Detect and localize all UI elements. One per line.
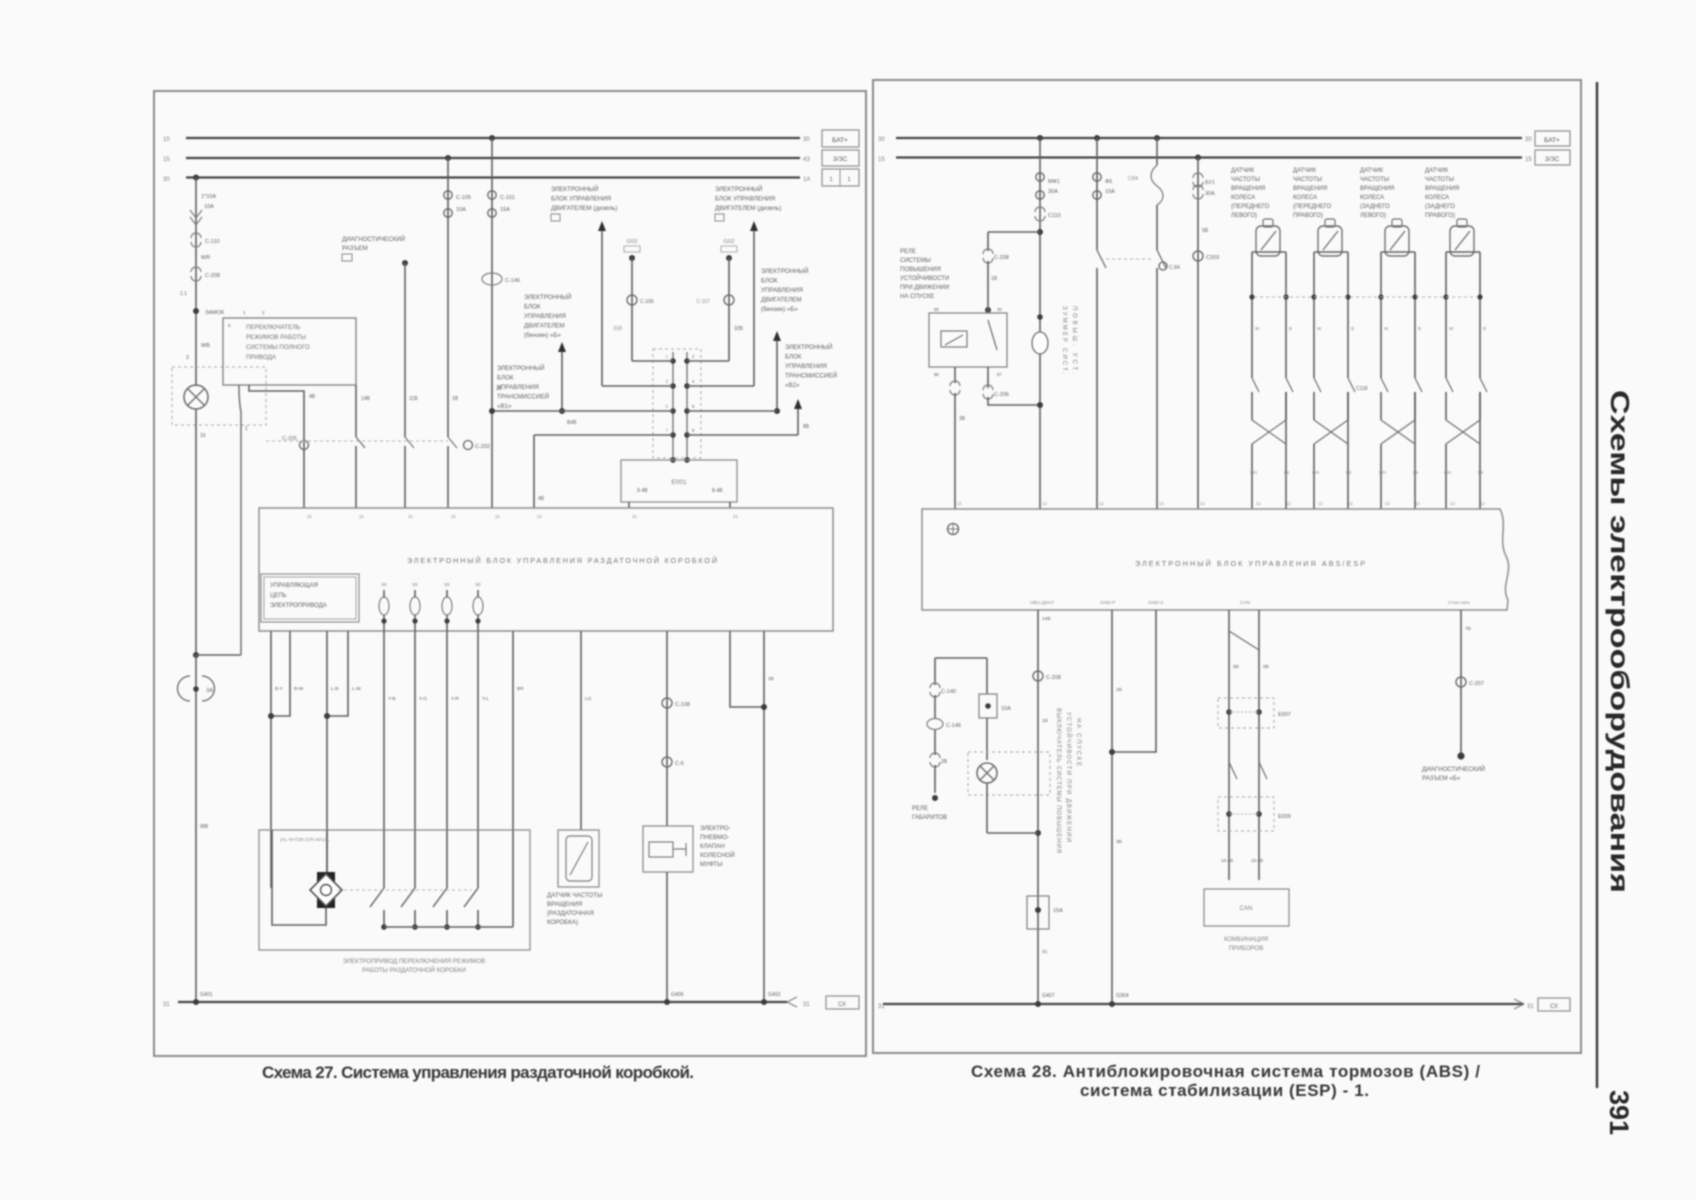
svg-text:ЗАМОК: ЗАМОК xyxy=(205,310,225,316)
svg-text:G02: G02 xyxy=(724,239,735,245)
svg-text:30A: 30A xyxy=(1048,189,1058,195)
svg-text:КЛАПАН: КЛАПАН xyxy=(700,843,725,850)
svg-text:16: 16 xyxy=(200,433,206,439)
svg-text:(ЗАДНЕГО: (ЗАДНЕГО xyxy=(1425,204,1455,210)
svg-text:BK: BK xyxy=(1284,470,1290,475)
svg-text:ПЕРЕКЛЮЧАТЕЛЬ: ПЕРЕКЛЮЧАТЕЛЬ xyxy=(246,324,300,331)
svg-text:Ф5: Ф5 xyxy=(1105,179,1112,185)
svg-text:GND-P: GND-P xyxy=(1100,600,1115,606)
svg-text:ЧАСТОТЫ: ЧАСТОТЫ xyxy=(1425,177,1454,183)
svg-text:WH: WH xyxy=(1444,470,1451,475)
svg-text:CAN: CAN xyxy=(1240,906,1253,912)
svg-text:ВРАЩЕНИЯ: ВРАЩЕНИЯ xyxy=(547,901,582,908)
svg-text:5B: 5B xyxy=(381,582,387,587)
svg-text:Схема 27. Система управления р: Схема 27. Система управления раздаточной… xyxy=(262,1063,694,1082)
svg-text:РЕЛЕ: РЕЛЕ xyxy=(912,806,928,812)
svg-text:ЭЛЕКТРОННЫЙ: ЭЛЕКТРОННЫЙ xyxy=(524,293,571,301)
svg-text:БЛОК УПРАВЛЕНИЯ: БЛОК УПРАВЛЕНИЯ xyxy=(551,196,611,203)
svg-text:(бензин) «Б»: (бензин) «Б» xyxy=(524,332,561,339)
svg-text:31: 31 xyxy=(803,1002,810,1008)
svg-text:КОЛЕСНОЙ: КОЛЕСНОЙ xyxy=(700,851,735,859)
svg-text:21: 21 xyxy=(537,514,543,519)
svg-text:21: 21 xyxy=(495,514,501,519)
svg-text:(бензин) «Б»: (бензин) «Б» xyxy=(761,306,798,313)
svg-text:(ПЕРЕДНЕГО: (ПЕРЕДНЕГО xyxy=(1231,204,1270,210)
svg-text:30: 30 xyxy=(803,137,810,143)
svg-text:G407: G407 xyxy=(1042,993,1055,999)
svg-text:3B: 3B xyxy=(959,416,966,422)
svg-text:15-4B: 15-4B xyxy=(1251,858,1263,863)
svg-text:21: 21 xyxy=(733,514,739,519)
svg-text:УСТОЙЧИВОСТИ: УСТОЙЧИВОСТИ xyxy=(900,274,949,282)
svg-text:21: 21 xyxy=(359,514,365,519)
svg-text:ПНЕВМО-: ПНЕВМО- xyxy=(700,834,729,841)
svg-text:12: 12 xyxy=(1042,501,1047,506)
svg-text:ДАТЧИК: ДАТЧИК xyxy=(1425,168,1449,174)
svg-text:ЭЛЕКТРОННЫЙ БЛОК УПРАВЛЕНИЯ РА: ЭЛЕКТРОННЫЙ БЛОК УПРАВЛЕНИЯ РАЗДАТОЧНОЙ … xyxy=(407,556,717,565)
svg-text:1: 1 xyxy=(245,426,248,432)
svg-text:87: 87 xyxy=(997,372,1002,377)
svg-text:ДАТЧИК: ДАТЧИК xyxy=(1360,168,1384,174)
svg-text:C203: C203 xyxy=(1206,255,1219,261)
svg-text:3: 3 xyxy=(186,355,189,361)
svg-text:12: 12 xyxy=(1286,501,1291,506)
svg-text:КОЛЕСА: КОЛЕСА xyxy=(1293,195,1317,201)
svg-text:32B: 32B xyxy=(734,326,744,332)
svg-text:C110: C110 xyxy=(1048,213,1061,219)
svg-text:15A: 15A xyxy=(500,207,510,213)
svg-text:4B: 4B xyxy=(538,496,545,502)
svg-text:9-4B: 9-4B xyxy=(637,488,648,494)
svg-text:BR: BR xyxy=(517,686,524,692)
svg-text:86: 86 xyxy=(934,372,939,377)
svg-text:G402: G402 xyxy=(768,992,781,998)
svg-text:УПРАВЛЯЮЩАЯ: УПРАВЛЯЮЩАЯ xyxy=(270,583,318,589)
svg-text:БЛОК УПРАВЛЕНИЯ: БЛОК УПРАВЛЕНИЯ xyxy=(715,196,775,203)
svg-text:З/ЗС: З/ЗС xyxy=(833,156,848,163)
svg-text:L-W: L-W xyxy=(352,686,361,692)
svg-text:КОЛЕСА: КОЛЕСА xyxy=(1425,195,1449,201)
svg-text:1B: 1B xyxy=(1042,718,1048,724)
svg-text:C-208: C-208 xyxy=(205,273,220,279)
svg-text:15: 15 xyxy=(163,157,170,163)
svg-text:ЭЛЕКТРОННЫЙ: ЭЛЕКТРОННЫЙ xyxy=(761,267,808,275)
svg-text:РЕЛЕ: РЕЛЕ xyxy=(900,249,916,255)
svg-text:БАТ+: БАТ+ xyxy=(1544,137,1560,144)
svg-text:C-107: C-107 xyxy=(696,299,710,305)
svg-text:12: 12 xyxy=(1385,501,1390,506)
svg-text:LG: LG xyxy=(585,696,592,702)
svg-text:6B: 6B xyxy=(1233,664,1239,670)
svg-text:система стабилизации (ESP) - 1: система стабилизации (ESP) - 1. xyxy=(1080,1081,1369,1100)
svg-text:12: 12 xyxy=(1450,501,1455,506)
svg-text:Y-L: Y-L xyxy=(482,696,489,702)
svg-text:МФ1: МФ1 xyxy=(1048,179,1060,185)
svg-text:B: B xyxy=(1483,326,1486,331)
svg-text:ТРАНСМИССИЕЙ: ТРАНСМИССИЕЙ xyxy=(785,372,837,380)
svg-text:G406: G406 xyxy=(671,992,684,998)
svg-text:1B: 1B xyxy=(452,396,459,402)
svg-text:C118: C118 xyxy=(1356,386,1368,392)
svg-text:14B: 14B xyxy=(361,396,371,402)
svg-text:BK: BK xyxy=(1346,470,1352,475)
svg-text:31B: 31B xyxy=(613,326,623,332)
svg-text:C-146: C-146 xyxy=(946,723,961,729)
svg-text:КОЛЕСА: КОЛЕСА xyxy=(1360,195,1384,201)
svg-text:ДВИГАТЕЛЕМ (дизель): ДВИГАТЕЛЕМ (дизель) xyxy=(551,205,617,212)
svg-text:КОРОБКА): КОРОБКА) xyxy=(547,919,578,926)
svg-text:ВРАЩЕНИЯ: ВРАЩЕНИЯ xyxy=(1231,186,1265,192)
svg-text:B-Y: B-Y xyxy=(275,686,284,692)
svg-text:РАЗЪЕМ: РАЗЪЕМ xyxy=(342,245,368,252)
svg-text:ДИАГНОСТИЧЕСКИЙ: ДИАГНОСТИЧЕСКИЙ xyxy=(342,235,405,243)
svg-text:Стоп-сигн: Стоп-сигн xyxy=(1448,600,1470,606)
svg-text:21: 21 xyxy=(307,514,313,519)
svg-text:BK: BK xyxy=(1413,470,1419,475)
svg-text:WR: WR xyxy=(201,255,210,261)
svg-text:B4B: B4B xyxy=(567,420,577,426)
svg-text:Y-B: Y-B xyxy=(388,696,396,702)
svg-text:43: 43 xyxy=(803,157,810,163)
svg-text:B: B xyxy=(1351,326,1354,331)
svg-text:WB: WB xyxy=(201,343,210,349)
svg-text:12: 12 xyxy=(1256,501,1261,506)
svg-text:ПРАВОГО): ПРАВОГО) xyxy=(1425,213,1455,219)
svg-text:ТРАНСМИССИЕЙ: ТРАНСМИССИЕЙ xyxy=(497,393,549,401)
svg-text:G02: G02 xyxy=(627,239,638,245)
svg-text:C84: C84 xyxy=(1128,176,1138,182)
svg-text:WH: WH xyxy=(1379,470,1386,475)
svg-text:C-84: C-84 xyxy=(1169,265,1180,271)
svg-text:ЭЛЕКТРОННЫЙ: ЭЛЕКТРОННЫЙ xyxy=(497,364,544,372)
svg-text:УПРАВЛЕНИЯ: УПРАВЛЕНИЯ xyxy=(761,287,803,294)
svg-text:ЛЕВОГО): ЛЕВОГО) xyxy=(1360,213,1386,219)
svg-text:ГАБАРИТОВ: ГАБАРИТОВ xyxy=(912,815,947,821)
svg-text:C-208: C-208 xyxy=(994,255,1009,261)
svg-text:УСТОЙЧИВОСТИ ПРИ ДВИЖЕНИИ: УСТОЙЧИВОСТИ ПРИ ДВИЖЕНИИ xyxy=(1065,712,1073,842)
svg-text:15: 15 xyxy=(1525,157,1532,163)
svg-text:1A: 1A xyxy=(803,177,810,183)
svg-text:WH: WH xyxy=(1250,470,1257,475)
svg-text:(ЗАДНЕГО: (ЗАДНЕГО xyxy=(1360,204,1390,210)
svg-text:21: 21 xyxy=(451,514,457,519)
svg-text:КОМБИНАЦИЯ: КОМБИНАЦИЯ xyxy=(1224,936,1268,943)
svg-text:WB: WB xyxy=(200,824,209,830)
svg-text:G401: G401 xyxy=(200,992,213,998)
svg-text:31: 31 xyxy=(1527,1004,1534,1010)
svg-text:ЭЛЕКТРОННЫЙ: ЭЛЕКТРОННЫЙ xyxy=(785,343,832,351)
svg-text:БЛОК: БЛОК xyxy=(761,278,778,285)
svg-text:85: 85 xyxy=(934,307,939,312)
svg-text:12: 12 xyxy=(1200,501,1205,506)
svg-text:31: 31 xyxy=(163,1002,170,1008)
svg-text:B: B xyxy=(1289,326,1292,331)
svg-text:ПРИБОРОВ: ПРИБОРОВ xyxy=(1229,945,1264,952)
svg-text:L-B: L-B xyxy=(331,686,338,692)
svg-text:12: 12 xyxy=(1318,501,1323,506)
svg-text:1.1: 1.1 xyxy=(180,291,187,297)
svg-text:ДАТЧИК ЧАСТОТЫ: ДАТЧИК ЧАСТОТЫ xyxy=(547,892,602,899)
svg-text:ПРИВОДА: ПРИВОДА xyxy=(246,354,277,361)
svg-text:ЭЛЕКТРОПРИВОД ПЕРЕКЛЮЧЕНИЯ РЕЖ: ЭЛЕКТРОПРИВОД ПЕРЕКЛЮЧЕНИЯ РЕЖИМОВ xyxy=(343,958,486,965)
svg-text:12: 12 xyxy=(1099,501,1104,506)
svg-text:15: 15 xyxy=(878,157,885,163)
svg-text:3B: 3B xyxy=(1116,839,1122,845)
svg-text:Y-R: Y-R xyxy=(451,696,459,702)
svg-text:C-208: C-208 xyxy=(1046,675,1061,681)
svg-text:8B: 8B xyxy=(803,424,810,430)
svg-text:«В1»: «В1» xyxy=(497,403,512,410)
svg-text:B-W: B-W xyxy=(294,686,304,692)
svg-text:10A: 10A xyxy=(1105,189,1115,195)
svg-text:16-4B: 16-4B xyxy=(1221,858,1233,863)
svg-text:10A: 10A xyxy=(204,204,214,210)
svg-text:РАБОТЫ РАЗДАТОЧНОЙ КОРОБКИ: РАБОТЫ РАЗДАТОЧНОЙ КОРОБКИ xyxy=(362,966,466,974)
svg-text:30: 30 xyxy=(1525,137,1532,143)
svg-text:WH: WH xyxy=(1312,470,1319,475)
svg-text:5B: 5B xyxy=(444,582,450,587)
svg-text:Y-G: Y-G xyxy=(419,696,427,702)
svg-text:6B: 6B xyxy=(1263,664,1269,670)
svg-text:НА СПУСКЕ: НА СПУСКЕ xyxy=(900,294,934,300)
svg-text:E007: E007 xyxy=(1278,712,1291,718)
svg-text:ВРАЩЕНИЯ: ВРАЩЕНИЯ xyxy=(1360,186,1394,192)
svg-text:HBU-ДИАГ: HBU-ДИАГ xyxy=(1030,600,1055,606)
svg-text:14B: 14B xyxy=(1042,616,1051,622)
svg-text:12: 12 xyxy=(1159,501,1164,506)
svg-text:«В2»: «В2» xyxy=(785,382,800,389)
svg-text:ДАТЧИК: ДАТЧИК xyxy=(1231,168,1255,174)
svg-text:ДВИГАТЕЛЕМ: ДВИГАТЕЛЕМ xyxy=(524,323,565,330)
svg-text:ДВИГАТЕЛЕМ: ДВИГАТЕЛЕМ xyxy=(761,297,802,304)
svg-text:НА СПУСКЕ: НА СПУСКЕ xyxy=(1075,718,1081,766)
svg-text:ЭЛЕКТРО-: ЭЛЕКТРО- xyxy=(700,825,731,832)
svg-text:15A: 15A xyxy=(1053,908,1063,914)
svg-text:ВРАЩЕНИЯ: ВРАЩЕНИЯ xyxy=(1293,186,1327,192)
svg-text:C-202: C-202 xyxy=(475,444,490,450)
svg-text:БУ1: БУ1 xyxy=(1205,180,1215,186)
svg-text:КОЛЕСА: КОЛЕСА xyxy=(1231,195,1255,201)
svg-text:СИСТЕМЫ: СИСТЕМЫ xyxy=(900,258,931,264)
svg-text:C-146: C-146 xyxy=(505,278,520,284)
svg-text:БЛОК: БЛОК xyxy=(497,375,514,382)
svg-text:УПРАВЛЕНИЯ: УПРАВЛЕНИЯ xyxy=(497,384,539,391)
svg-text:ДВИГАТЕЛЕМ (дизель): ДВИГАТЕЛЕМ (дизель) xyxy=(715,205,781,212)
svg-text:РАЗЪЕМ «Б»: РАЗЪЕМ «Б» xyxy=(1422,775,1461,782)
svg-text:ЧАСТОТЫ: ЧАСТОТЫ xyxy=(1360,177,1389,183)
svg-text:5B: 5B xyxy=(412,582,418,587)
svg-text:ЦЕПЬ: ЦЕПЬ xyxy=(270,593,287,599)
svg-text:31: 31 xyxy=(1042,949,1048,955)
svg-text:G304: G304 xyxy=(1116,993,1129,999)
svg-text:30: 30 xyxy=(878,137,885,143)
svg-text:1*10A: 1*10A xyxy=(201,194,216,200)
svg-text:ДИАГНОСТИЧЕСКИЙ: ДИАГНОСТИЧЕСКИЙ xyxy=(1422,765,1485,773)
svg-text:C-108: C-108 xyxy=(675,702,690,708)
svg-text:11B: 11B xyxy=(409,396,418,402)
svg-text:CAN: CAN xyxy=(1240,600,1251,606)
svg-text:Схема 28. Антиблокировочная си: Схема 28. Антиблокировочная система торм… xyxy=(971,1062,1480,1081)
svg-text:B: B xyxy=(1418,326,1421,331)
svg-text:10A: 10A xyxy=(1001,706,1011,712)
svg-text:E001: E001 xyxy=(671,479,687,486)
svg-text:391: 391 xyxy=(1604,1090,1634,1135)
svg-text:ЭЛЕКТРОННЫЙ: ЭЛЕКТРОННЫЙ xyxy=(715,185,762,193)
svg-text:12: 12 xyxy=(1480,501,1485,506)
svg-text:C-105: C-105 xyxy=(456,195,471,201)
svg-text:СХ: СХ xyxy=(1550,1004,1558,1010)
svg-text:СХ: СХ xyxy=(838,1002,846,1008)
svg-text:31: 31 xyxy=(878,1004,885,1010)
svg-text:ЗА: ЗА xyxy=(206,688,213,694)
svg-text:2B: 2B xyxy=(1116,687,1122,693)
svg-text:8-4B: 8-4B xyxy=(712,488,723,494)
svg-text:BK: BK xyxy=(1478,470,1484,475)
svg-text:(AL-WY)36 (OR-WA)4L: (AL-WY)36 (OR-WA)4L xyxy=(280,837,330,843)
svg-text:5B: 5B xyxy=(475,582,481,587)
svg-text:30: 30 xyxy=(163,177,170,183)
svg-text:З/ЗС: З/ЗС xyxy=(1545,156,1560,163)
svg-text:21: 21 xyxy=(408,514,414,519)
svg-text:12: 12 xyxy=(1348,501,1353,506)
svg-text:C-206: C-206 xyxy=(994,392,1009,398)
svg-text:C-207: C-207 xyxy=(1469,681,1484,687)
svg-text:БАТ+: БАТ+ xyxy=(832,137,848,144)
svg-text:ЛЕВОГО): ЛЕВОГО) xyxy=(1231,213,1257,219)
svg-text:C-6: C-6 xyxy=(675,761,684,767)
svg-text:ЭЛЕКТРОПРИВОДА: ЭЛЕКТРОПРИВОДА xyxy=(270,603,327,609)
svg-text:ПРИ ДВИЖЕНИИ: ПРИ ДВИЖЕНИИ xyxy=(900,285,949,291)
svg-text:БЛОК: БЛОК xyxy=(785,354,802,361)
svg-text:ПОВЫШЕНИЯ: ПОВЫШЕНИЯ xyxy=(900,267,941,273)
svg-text:5B: 5B xyxy=(1202,228,1209,234)
svg-text:C-106: C-106 xyxy=(640,299,654,305)
svg-text:УПРАВЛЕНИЯ: УПРАВЛЕНИЯ xyxy=(524,313,566,320)
svg-text:ДАТЧИК: ДАТЧИК xyxy=(1293,168,1317,174)
svg-text:Схемы электрооборудования: Схемы электрооборудования xyxy=(1605,390,1635,893)
svg-text:УПРАВЛЕНИЯ: УПРАВЛЕНИЯ xyxy=(785,363,827,370)
svg-text:30A: 30A xyxy=(1205,191,1215,197)
svg-text:C-101: C-101 xyxy=(500,195,515,201)
svg-text:12: 12 xyxy=(1415,501,1420,506)
svg-text:ВРАЩЕНИЯ: ВРАЩЕНИЯ xyxy=(1425,186,1459,192)
svg-text:2B: 2B xyxy=(768,676,774,682)
svg-text:12: 12 xyxy=(957,501,962,506)
svg-text:10: 10 xyxy=(163,137,170,143)
svg-text:ЧАСТОТЫ: ЧАСТОТЫ xyxy=(1293,177,1322,183)
svg-text:10A: 10A xyxy=(456,207,466,213)
svg-text:ПРАВОГО): ПРАВОГО) xyxy=(1293,213,1323,219)
svg-text:GND-S: GND-S xyxy=(1148,600,1163,606)
svg-text:C-110: C-110 xyxy=(205,239,220,245)
svg-text:МУФТЫ: МУФТЫ xyxy=(700,861,723,868)
svg-text:1B: 1B xyxy=(991,276,998,282)
svg-text:E009: E009 xyxy=(1278,814,1291,820)
svg-text:30: 30 xyxy=(997,307,1002,312)
svg-text:ЭЛЕКТРОННЫЙ: ЭЛЕКТРОННЫЙ xyxy=(551,185,598,193)
svg-text:ЧАСТОТЫ: ЧАСТОТЫ xyxy=(1231,177,1260,183)
svg-text:C-140: C-140 xyxy=(941,689,956,695)
svg-text:БЛОК: БЛОК xyxy=(524,304,541,311)
svg-text:(РАЗДАТОЧНАЯ: (РАЗДАТОЧНАЯ xyxy=(547,910,594,917)
svg-text:21: 21 xyxy=(632,514,638,519)
svg-text:7B: 7B xyxy=(1465,626,1471,632)
svg-text:2B: 2B xyxy=(941,759,948,765)
svg-text:ЭЛЕКТРОННЫЙ БЛОК УПРАВЛЕНИЯ AB: ЭЛЕКТРОННЫЙ БЛОК УПРАВЛЕНИЯ ABS/ESP xyxy=(1135,559,1365,568)
svg-text:(ПЕРЕДНЕГО: (ПЕРЕДНЕГО xyxy=(1293,204,1332,210)
svg-text:ВЫКЛЮЧАТЕЛЬ СИСТЕМЫ ПОВЫШЕНИЯ: ВЫКЛЮЧАТЕЛЬ СИСТЕМЫ ПОВЫШЕНИЯ xyxy=(1055,708,1061,853)
svg-text:4B: 4B xyxy=(309,394,316,400)
svg-text:СИСТЕМЫ ПОЛНОГО: СИСТЕМЫ ПОЛНОГО xyxy=(246,344,310,351)
svg-text:РЕЖИМОВ РАБОТЫ: РЕЖИМОВ РАБОТЫ xyxy=(246,334,306,341)
